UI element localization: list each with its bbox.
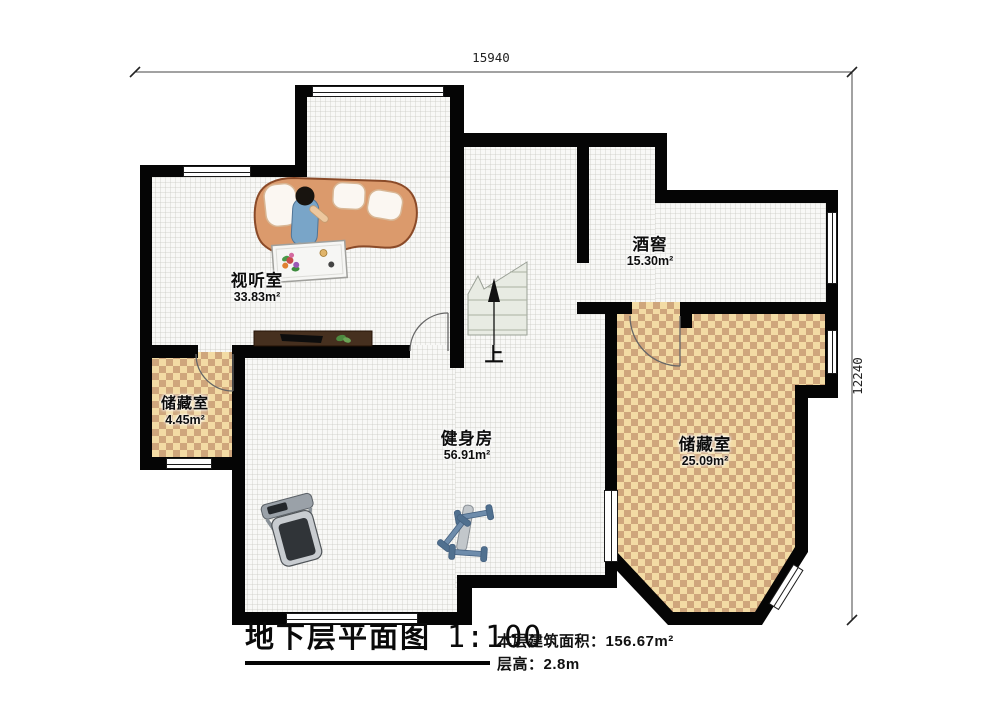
room-name: 储藏室 — [645, 436, 765, 454]
wall — [234, 345, 410, 358]
wall — [680, 302, 838, 314]
wall — [295, 85, 307, 177]
wall — [577, 147, 589, 263]
window — [827, 330, 837, 374]
room-area: 4.45m² — [125, 413, 245, 427]
floor-area-text: 本层建筑面积：156.67m² — [497, 630, 674, 651]
floor-gym-right — [455, 345, 617, 588]
room-label-storage-large: 储藏室 25.09m² — [645, 436, 765, 468]
stairs-direction-label: 上 — [479, 340, 509, 367]
floor-alcove — [295, 85, 464, 177]
dimension-right: 12240 — [850, 337, 864, 415]
window — [312, 86, 444, 97]
wall — [655, 147, 667, 192]
wall — [577, 302, 632, 314]
room-name: 储藏室 — [125, 396, 245, 413]
title-underline — [245, 661, 490, 665]
room-label-gym: 健身房 56.91m² — [407, 430, 527, 462]
window — [183, 166, 251, 177]
room-label-audio-visual: 视听室 33.83m² — [197, 272, 317, 304]
room-name: 健身房 — [407, 430, 527, 448]
room-area: 56.91m² — [407, 448, 527, 462]
room-name: 酒窖 — [590, 236, 710, 254]
room-name: 视听室 — [197, 272, 317, 290]
wall — [140, 345, 198, 358]
wall — [450, 85, 464, 368]
window — [604, 490, 618, 562]
wall — [457, 575, 617, 588]
floor-plan-canvas: 视听室 33.83m² 酒窖 15.30m² 储藏室 4.45m² 健身房 56… — [0, 0, 1000, 706]
wall — [232, 345, 245, 625]
floor-audio-visual-room — [140, 165, 460, 358]
room-label-wine-cellar: 酒窖 15.30m² — [590, 236, 710, 268]
floor-height-text: 层高：2.8m — [497, 653, 580, 674]
window — [166, 458, 212, 469]
wall — [655, 190, 838, 203]
plan-title: 地下层平面图 — [245, 624, 431, 653]
storage-large-door-opening — [632, 302, 680, 314]
floor-gym-left — [232, 345, 470, 625]
window — [827, 212, 837, 284]
dimension-top: 15940 — [452, 50, 530, 65]
wall — [450, 133, 667, 147]
room-area: 25.09m² — [645, 454, 765, 468]
room-label-storage-small: 储藏室 4.45m² — [125, 396, 245, 427]
room-area: 15.30m² — [590, 254, 710, 268]
room-area: 33.83m² — [197, 290, 317, 304]
wall — [680, 314, 692, 328]
